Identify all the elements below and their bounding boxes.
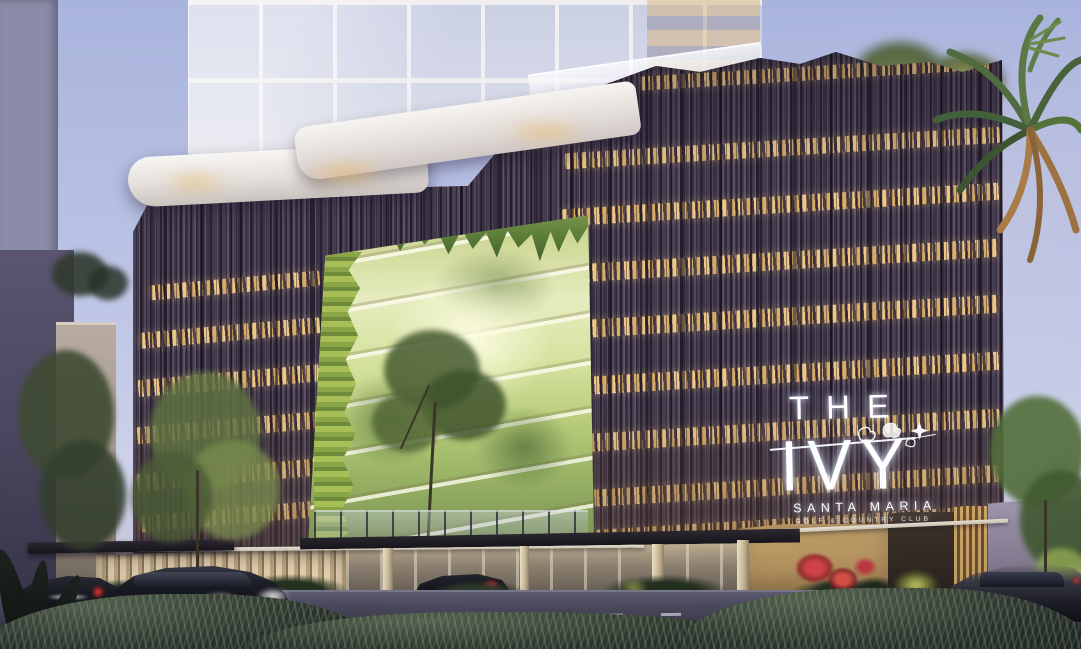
tree-canopy	[40, 440, 126, 550]
taillight	[1073, 576, 1080, 585]
sign-line-santa-maria: SANTA MARIA	[793, 498, 937, 515]
lit-window-band	[150, 271, 321, 301]
car-windows	[980, 572, 1064, 587]
downlight-glow	[300, 160, 390, 186]
architectural-rendering: THE IVY SANTA MARIA GOLF & COUNTRY CLUB	[0, 0, 1081, 649]
taillight	[92, 586, 104, 598]
downlight-glow	[500, 120, 590, 144]
lit-window-band	[140, 317, 321, 349]
green-wall-atrium	[302, 212, 594, 548]
palm-tree-icon	[880, 0, 1081, 340]
sign-line-ivy: IVY	[779, 422, 914, 507]
car-windows	[134, 572, 252, 589]
tree-trunk	[196, 470, 199, 570]
downlight-glow	[160, 172, 230, 194]
tree-canopy	[132, 452, 212, 542]
parapet-plant	[88, 266, 128, 300]
ivy-signage: THE IVY SANTA MARIA GOLF & COUNTRY CLUB	[767, 380, 955, 526]
